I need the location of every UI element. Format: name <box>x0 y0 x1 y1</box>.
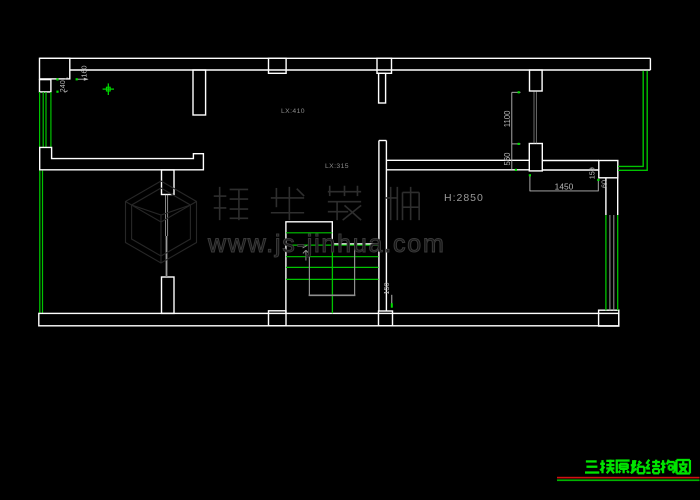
svg-text:560: 560 <box>503 152 512 166</box>
svg-text:LX:410: LX:410 <box>281 108 305 115</box>
svg-text:160: 160 <box>80 66 89 78</box>
svg-text:150: 150 <box>382 283 391 295</box>
svg-text:LX:315: LX:315 <box>325 163 349 170</box>
svg-text:H:2850: H:2850 <box>444 192 484 204</box>
svg-text:1450: 1450 <box>555 182 574 192</box>
svg-text:240: 240 <box>58 80 67 92</box>
svg-text:60: 60 <box>599 180 608 188</box>
svg-text:1100: 1100 <box>503 110 512 127</box>
svg-text:www.js-jinhua.com: www.js-jinhua.com <box>207 230 446 258</box>
